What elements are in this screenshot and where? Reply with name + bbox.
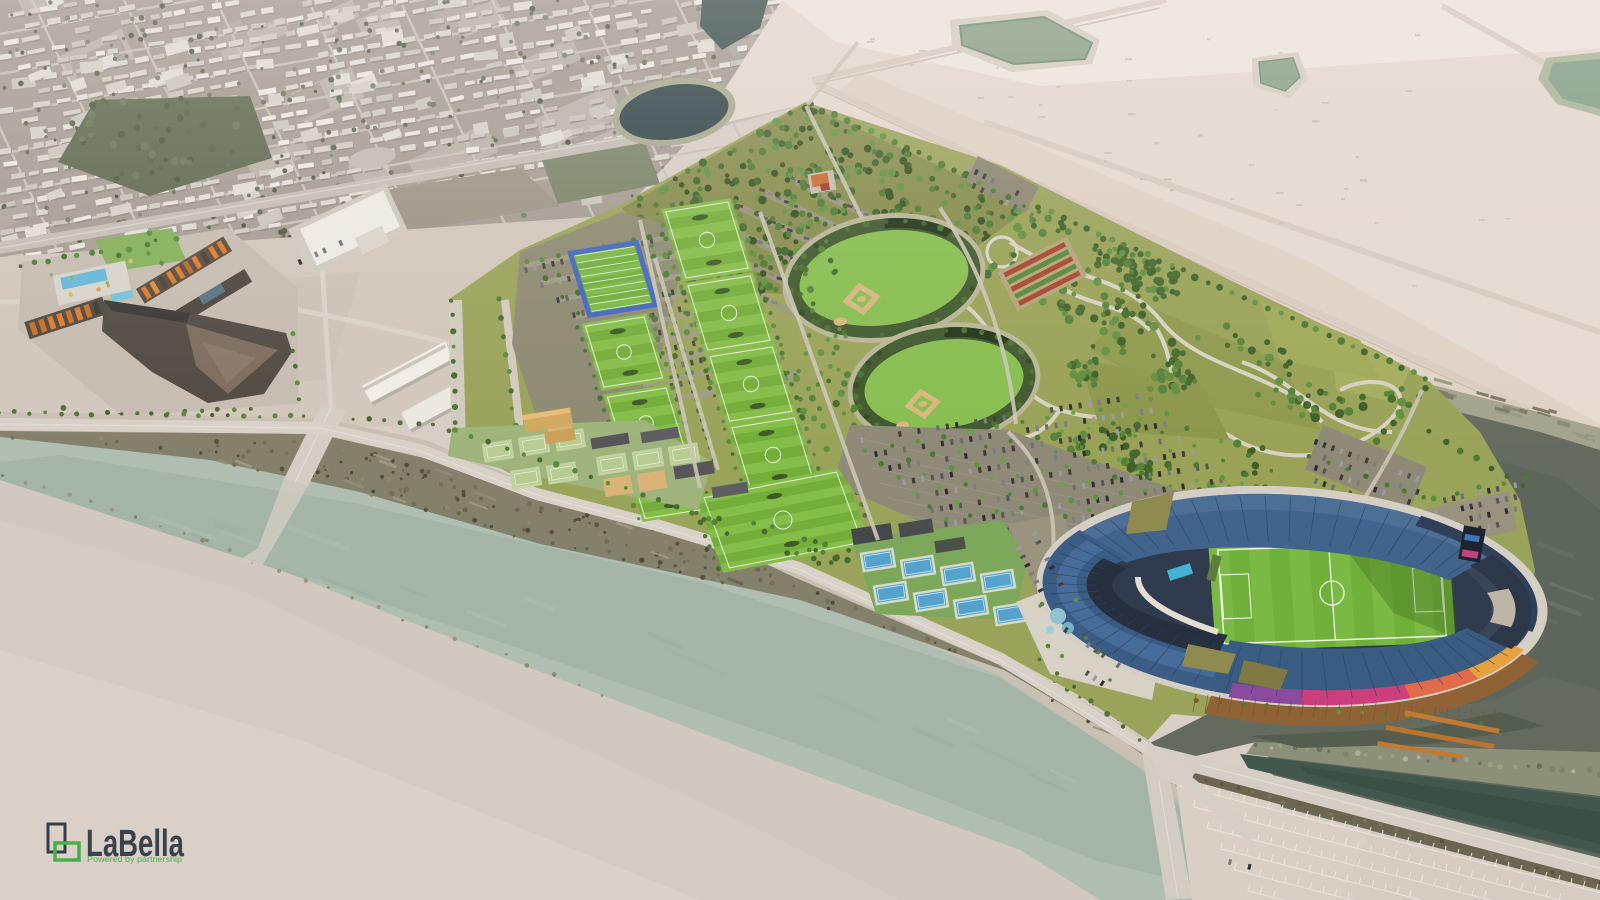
svg-text:Powered by partnership: Powered by partnership bbox=[87, 855, 183, 864]
